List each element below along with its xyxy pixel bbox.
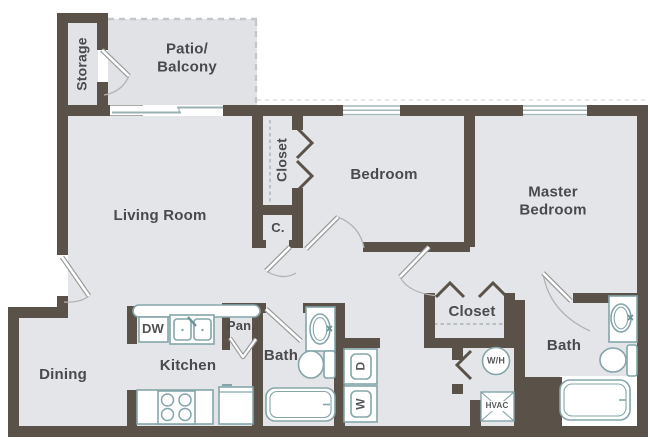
wall-segment [97,23,108,50]
wall-segment [292,188,303,248]
wall-segment [464,116,475,247]
room-label-bedroom: Bedroom [350,166,417,184]
room-label-master-closet: Closet [448,303,495,321]
floor-plan: Storage Patio/ Balcony Living Room Close… [0,0,650,440]
patio-slider-door [110,106,223,116]
room-label-small-closet: C. [271,220,284,236]
wall-segment [289,240,303,248]
wall-segment [252,205,303,215]
room-label-hall-bath: Bath [264,347,298,365]
washer-label: W [354,398,369,410]
wall-segment [8,307,19,437]
dryer-label: D [354,362,369,371]
room-label-pantry: Pan. [227,318,255,334]
room-label-storage: Storage [73,37,90,91]
room-label-dining: Dining [39,366,87,384]
wall-segment [127,390,137,426]
wall-segment [252,240,266,248]
patio-label-line2: Balcony [157,59,217,77]
bathtub-icon [560,380,630,420]
wall-segment [363,242,470,252]
bedroom-window [343,105,400,117]
wall-segment [452,384,463,394]
room-label-kitchen: Kitchen [160,357,216,375]
wall-segment [424,338,515,348]
room-label-living-room: Living Room [113,207,206,225]
master-label-line2: Bedroom [519,202,586,220]
wall-segment [452,348,463,360]
wall-segment [334,338,380,348]
room-label-master-bedroom: Master Bedroom [519,184,586,221]
wall-segment [8,426,648,437]
wall-segment [57,13,68,116]
wall-segment [223,105,343,116]
patio-label-line1: Patio/ [157,41,217,59]
stove-icon [158,391,195,424]
room-label-master-bath: Bath [547,337,581,355]
room-label-bedroom-closet: Closet [273,138,290,182]
wall-segment [470,400,481,426]
wall-segment [514,377,562,426]
bathtub-icon [266,388,335,421]
wall-segment [57,13,108,23]
hvac-label: HVAC [485,401,510,411]
water-heater-label: W/H [487,356,505,367]
master-label-line1: Master [519,184,586,202]
wall-segment [57,296,68,318]
wall-segment [514,300,525,380]
wall-segment [252,116,263,248]
master-bedroom-window [523,105,587,117]
wall-segment [57,116,68,255]
wall-segment [400,105,523,116]
room-label-patio-balcony: Patio/ Balcony [157,41,217,78]
fridge-icon [219,385,253,424]
toilet-icon [299,351,336,378]
wall-segment [637,105,648,437]
kitchen-sink-icon [170,315,214,344]
dishwasher-label: DW [142,321,164,337]
